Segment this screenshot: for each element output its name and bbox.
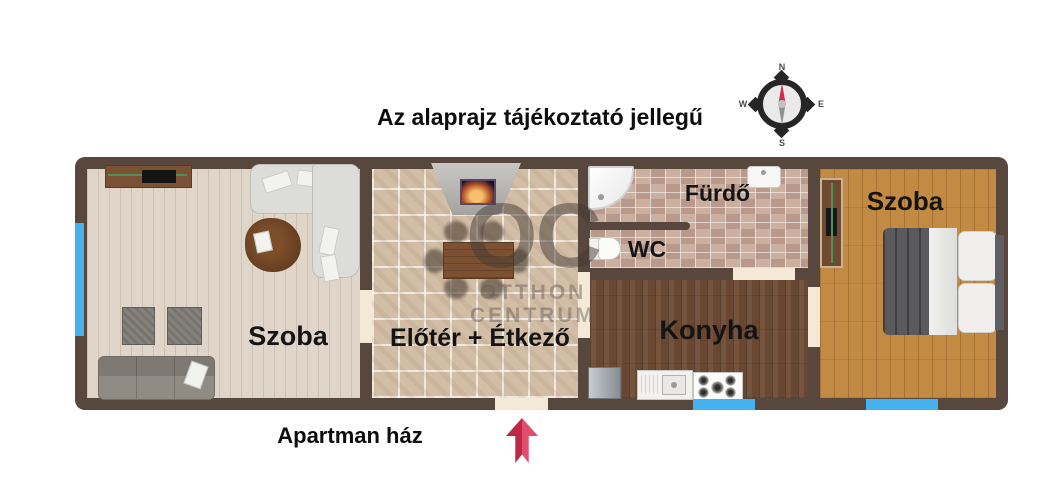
tv-screen (142, 170, 176, 183)
dining-chair (444, 221, 468, 243)
stove-hob (693, 372, 743, 401)
sink-drainer (641, 375, 659, 393)
compass-east-label: E (815, 99, 827, 109)
dining-chair (444, 277, 468, 299)
fireplace-screen (460, 179, 496, 205)
room-bathroom-label: Fürdő (670, 182, 765, 205)
shower-drain (598, 194, 604, 200)
kitchen-sink-bowl (662, 375, 686, 395)
coffee-table (245, 218, 301, 272)
bed-headboard (995, 235, 1004, 330)
page-title: Az alaprajz tájékoztató jellegű (355, 104, 725, 131)
room-hall-label: Előtér + Étkező (375, 326, 585, 351)
bed-blanket (883, 228, 929, 335)
dining-table (443, 242, 514, 279)
door-opening-bedroom (808, 287, 820, 347)
coffee-table-tray (253, 231, 273, 254)
bed-sheet (929, 228, 957, 335)
floor-plan: Szoba Előtér + Étkező Fürdő WC (75, 157, 1008, 410)
burner (698, 375, 709, 386)
room-kitchen-label: Konyha (647, 317, 771, 344)
entrance-arrow-icon (506, 418, 538, 463)
burner (725, 387, 736, 398)
wardrobe (820, 178, 843, 268)
room-living-label: Szoba (227, 323, 349, 350)
window-living (75, 223, 84, 336)
door-opening-living-hall (360, 290, 372, 343)
bed (883, 228, 996, 335)
kitchen-sink-counter (637, 370, 693, 400)
burner (725, 375, 736, 386)
sofa (98, 356, 215, 400)
window-kitchen (693, 399, 755, 410)
sofa-pillow (183, 361, 208, 390)
room-bedroom-label: Szoba (850, 188, 960, 214)
door-opening-entrance (495, 398, 548, 410)
kitchen-sink-drain (671, 382, 677, 388)
burner (698, 387, 709, 398)
room-wc-label: WC (615, 238, 679, 261)
wall-bathroom-wc-divider (590, 222, 690, 230)
bed-pillow (958, 283, 997, 333)
window-bedroom (866, 399, 938, 410)
plan-caption: Apartman ház (255, 423, 445, 449)
dining-chair (480, 221, 504, 243)
pouf (122, 307, 155, 345)
compass-center-dot (778, 100, 786, 108)
sofa-pillow (320, 254, 340, 282)
compass-icon: N S W E (737, 60, 827, 150)
compass-south-label: S (776, 138, 788, 148)
dining-chair (480, 277, 504, 299)
wardrobe-handle (831, 183, 833, 263)
burner (711, 381, 724, 394)
tv-stand (105, 165, 192, 188)
corner-sofa-side (312, 164, 360, 278)
sofa-pillow (318, 226, 339, 257)
sink-faucet (761, 170, 766, 175)
bed-pillow (958, 231, 997, 281)
floor-plan-page: Az alaprajz tájékoztató jellegű N S W E (0, 0, 1062, 500)
fridge (588, 367, 621, 399)
door-opening-kitchen-bathroom (733, 268, 795, 280)
pouf (167, 307, 202, 345)
sofa-pillow (261, 170, 293, 194)
